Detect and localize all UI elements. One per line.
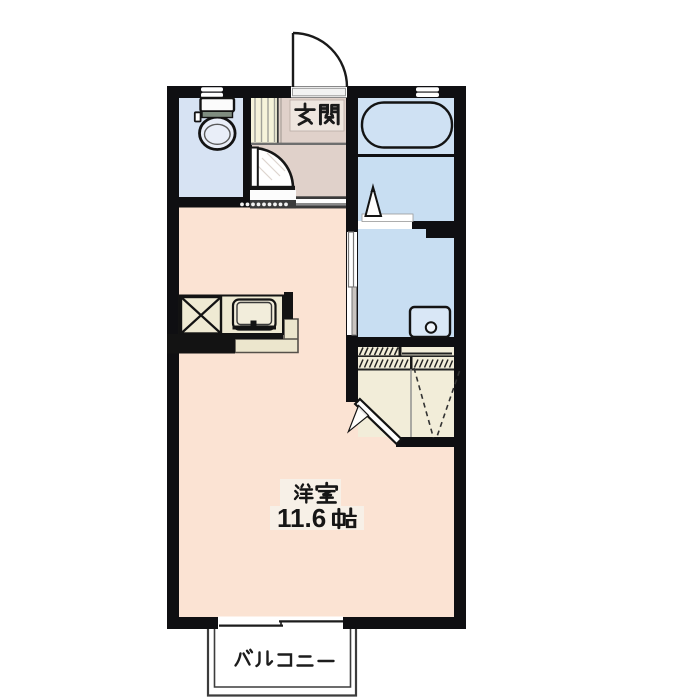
svg-text:11.6: 11.6 bbox=[277, 503, 326, 533]
